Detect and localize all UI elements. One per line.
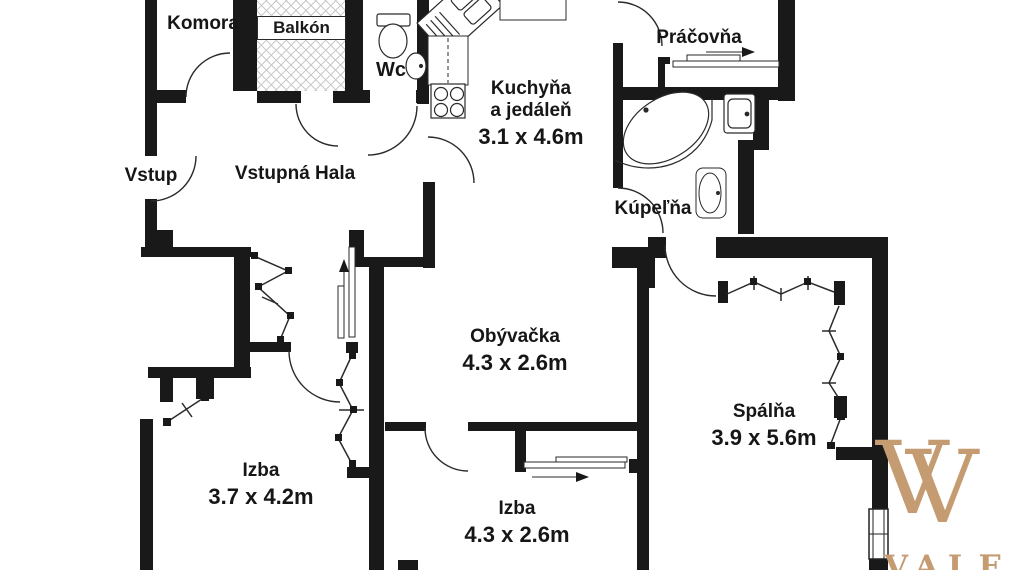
room-name: Obývačka	[462, 326, 567, 348]
room-label-spalna: Spálňa 3.9 x 5.6m	[711, 401, 816, 450]
room-label-balkon: Balkón	[257, 16, 346, 40]
balcony-hatch-area	[257, 0, 345, 91]
window-zigzag-hall	[254, 256, 290, 340]
stove-icon	[431, 84, 465, 118]
room-label-pracovna: Práčovňa	[656, 27, 742, 49]
slide-arrow-up-icon	[339, 259, 349, 272]
room-label-izba1: Izba 3.7 x 4.2m	[208, 460, 313, 509]
slide-arrow-right-icon	[576, 472, 589, 482]
watermark-brand-text: VALEN	[884, 549, 1011, 570]
room-label-wc: Wc	[376, 59, 406, 81]
room-name: Komora	[167, 13, 239, 35]
room-name: Kuchyňa	[478, 78, 583, 100]
door-arc-spalna	[665, 245, 716, 296]
room-label-kupelna: Kúpeľňa	[615, 198, 692, 220]
room-label-kuchyna: Kuchyňa a jedáleň 3.1 x 4.6m	[478, 78, 583, 149]
room-label-hala: Vstupná Hala	[235, 163, 355, 185]
room-name: Izba	[464, 498, 569, 520]
room-label-vstup: Vstup	[125, 165, 178, 187]
watermark-logo-v-icon: V	[906, 438, 978, 538]
room-label-komora: Komora	[167, 13, 239, 35]
door-arc-kuchyna	[428, 137, 474, 183]
room-label-obyvacka: Obývačka 4.3 x 2.6m	[462, 326, 567, 375]
door-arc-izba2	[425, 428, 468, 471]
room-name: Kúpeľňa	[615, 198, 692, 220]
room-dimensions: 3.9 x 5.6m	[711, 426, 816, 450]
door-arc-izba1	[289, 351, 340, 402]
slide-arrow-right-icon	[742, 47, 755, 57]
room-name: Balkón	[273, 18, 330, 38]
room-name-line2: a jedáleň	[478, 100, 583, 122]
floorplan: Komora Balkón Wc Kuchyňa a jedáleň 3.1 x…	[0, 0, 1011, 570]
room-name: Práčovňa	[656, 27, 742, 49]
room-name: Spálňa	[711, 401, 816, 423]
door-arc-balkon	[296, 104, 338, 146]
toilet-icon	[377, 14, 410, 58]
room-dimensions: 4.3 x 2.6m	[462, 351, 567, 375]
room-label-izba2: Izba 4.3 x 2.6m	[464, 498, 569, 547]
room-name: Vstupná Hala	[235, 163, 355, 185]
room-name: Vstup	[125, 165, 178, 187]
bathroom-sink-icon	[696, 168, 726, 218]
room-dimensions: 4.3 x 2.6m	[464, 523, 569, 547]
room-dimensions: 3.1 x 4.6m	[478, 125, 583, 149]
washing-machine-icon	[724, 94, 755, 133]
door-arc-komora	[186, 53, 230, 97]
wc-sink-icon	[406, 53, 426, 79]
room-name: Wc	[376, 59, 406, 81]
window-diagonal-spalna-corner	[830, 417, 841, 446]
room-name: Izba	[208, 460, 313, 482]
door-arc-wc	[368, 106, 417, 155]
room-dimensions: 3.7 x 4.2m	[208, 485, 313, 509]
